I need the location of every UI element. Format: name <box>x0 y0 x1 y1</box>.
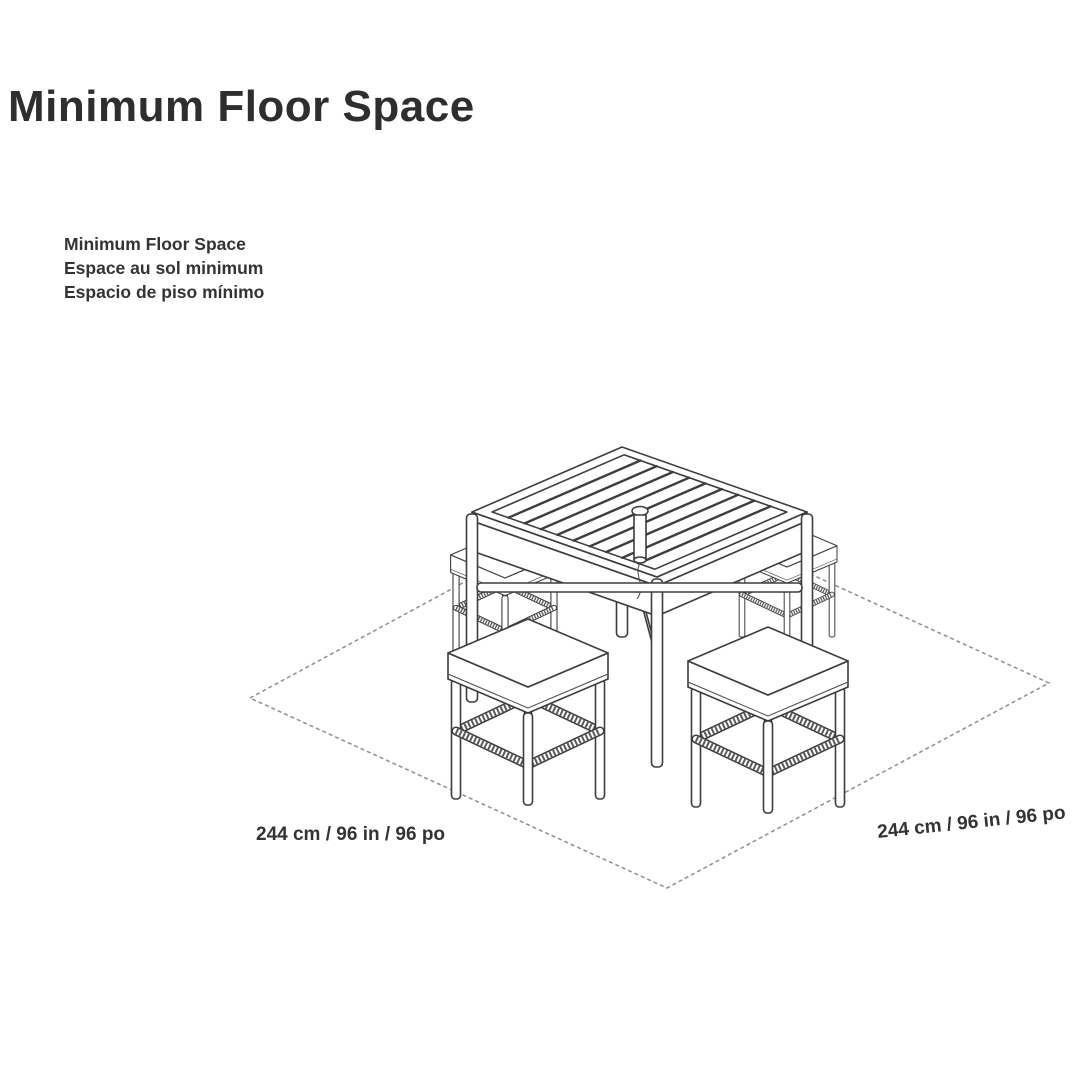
bar-table <box>467 447 813 767</box>
umbrella-hole <box>632 507 648 516</box>
stool-front-left <box>448 619 608 805</box>
table-leg-front <box>652 579 663 767</box>
dimension-label-right: 244 cm / 96 in / 96 po <box>876 802 1066 843</box>
manual-page: Minimum Floor Space Minimum Floor Space … <box>0 0 1080 1080</box>
stool-front-right <box>688 627 848 813</box>
dimension-label-left: 244 cm / 96 in / 96 po <box>256 824 445 845</box>
table-stretcher-we <box>477 583 802 592</box>
floor-space-diagram: 244 cm / 96 in / 96 po 244 cm / 96 in / … <box>0 0 1080 1080</box>
